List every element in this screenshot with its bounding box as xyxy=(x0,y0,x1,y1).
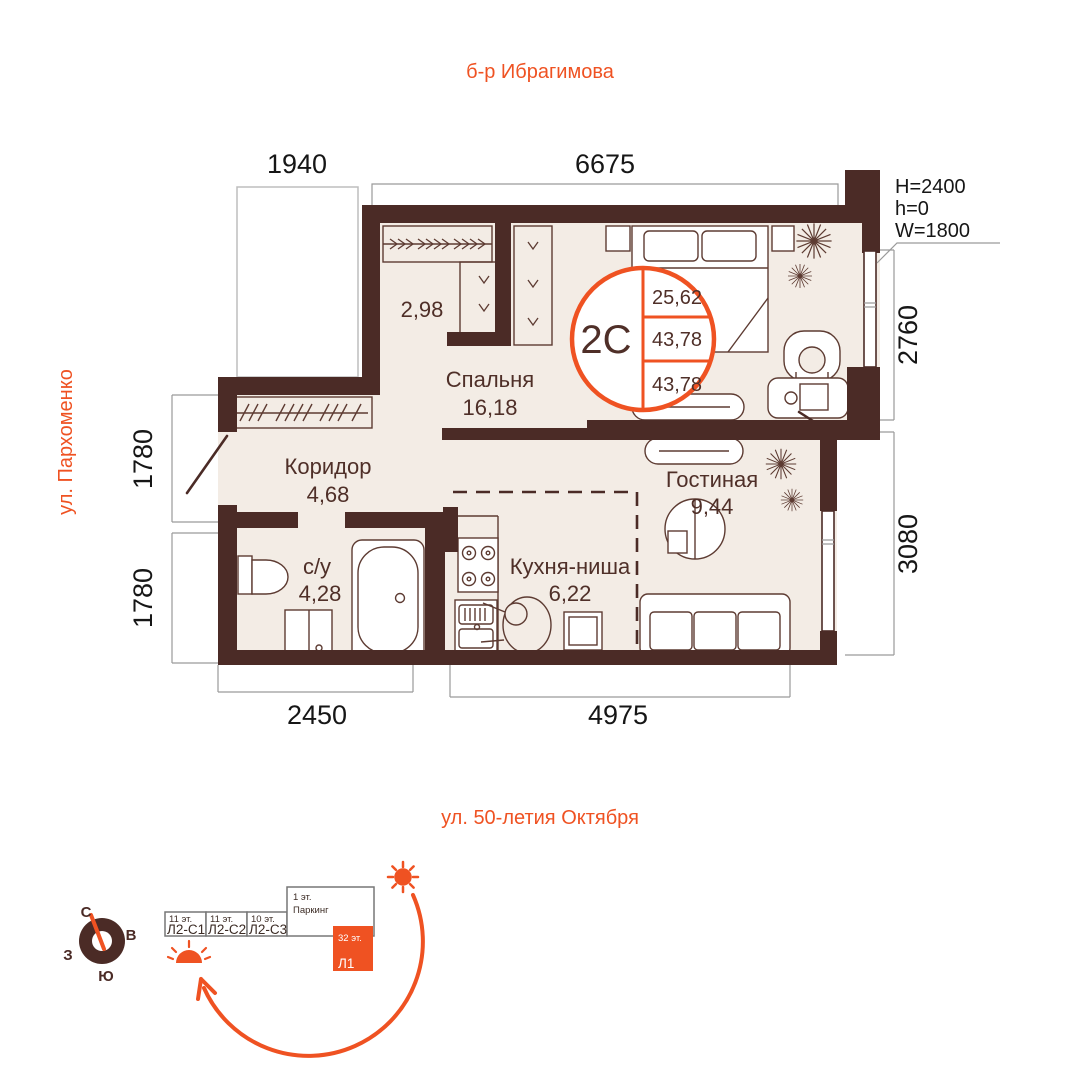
room-corridor-area: 4,68 xyxy=(307,482,350,507)
room-kitchen-area: 6,22 xyxy=(549,581,592,606)
sink-icon xyxy=(455,600,497,652)
block-l2c1-name: Л2-С1 xyxy=(167,922,205,937)
room-living-area: 9,44 xyxy=(691,494,734,519)
block-l2c2-name: Л2-С2 xyxy=(208,922,246,937)
block-l1-name: Л1 xyxy=(338,956,354,971)
room-corridor-name: Коридор xyxy=(285,454,372,479)
window-spec-h: H=2400 xyxy=(895,176,966,198)
console-icon xyxy=(645,438,743,464)
compass-north: С xyxy=(81,904,92,921)
unit-area-2: 43,78 xyxy=(652,329,702,351)
room-kitchen-name: Кухня-ниша xyxy=(510,554,631,579)
stove-icon xyxy=(458,538,498,592)
dim-1780-lower: 1780 xyxy=(128,568,158,628)
window-spec-hs: h=0 xyxy=(895,198,929,220)
block-parking-name: Паркинг xyxy=(293,905,329,916)
unit-type: 2С xyxy=(580,318,631,362)
sun-icon xyxy=(388,862,418,892)
unit-area-3: 43,78 xyxy=(652,374,702,396)
bathtub-icon xyxy=(352,540,424,660)
room-bathroom-area: 4,28 xyxy=(299,581,342,606)
compass-west: З xyxy=(63,947,72,964)
floor-plan-canvas: 1940 6675 2760 3080 1780 1780 2450 4975 … xyxy=(0,0,1081,1080)
street-left: ул. Пархоменко xyxy=(55,369,77,515)
site-plan: С В З Ю 11 эт. Л2-С1 11 эт. Л2-С2 10 эт.… xyxy=(63,862,423,1056)
block-l1-floors: 32 эт. xyxy=(338,933,362,944)
block-parking-floors: 1 эт. xyxy=(293,892,312,903)
sunset-icon xyxy=(168,941,210,963)
compass-east: В xyxy=(126,927,137,944)
window-spec-w: W=1800 xyxy=(895,220,970,242)
dim-2760: 2760 xyxy=(893,305,923,365)
window-icon xyxy=(864,251,876,367)
washing-machine-icon xyxy=(285,610,332,656)
window-icon xyxy=(822,511,834,631)
sofa-icon xyxy=(640,594,790,656)
street-bottom: ул. 50-летия Октября xyxy=(441,807,639,829)
room-closet-area: 2,98 xyxy=(401,297,444,322)
dim-3080: 3080 xyxy=(893,514,923,574)
dim-1780-upper: 1780 xyxy=(128,429,158,489)
block-l2c3-name: Л2-С3 xyxy=(249,922,287,937)
compass: С В З Ю xyxy=(63,904,136,985)
dim-1940: 1940 xyxy=(267,149,327,179)
room-bathroom-name: с/у xyxy=(303,554,331,579)
compass-south: Ю xyxy=(98,968,113,985)
room-bedroom-area: 16,18 xyxy=(462,395,517,420)
unit-area-1: 25,62 xyxy=(652,287,702,309)
dim-4975: 4975 xyxy=(588,700,648,730)
dim-2450: 2450 xyxy=(287,700,347,730)
street-top: б-р Ибрагимова xyxy=(466,61,615,83)
room-living-name: Гостиная xyxy=(666,467,758,492)
balcony-outline xyxy=(237,187,358,377)
stool-icon xyxy=(564,612,602,650)
unit-badge: 2С 25,62 43,78 43,78 xyxy=(572,268,714,410)
room-bedroom-name: Спальня xyxy=(446,367,534,392)
dim-6675: 6675 xyxy=(575,149,635,179)
